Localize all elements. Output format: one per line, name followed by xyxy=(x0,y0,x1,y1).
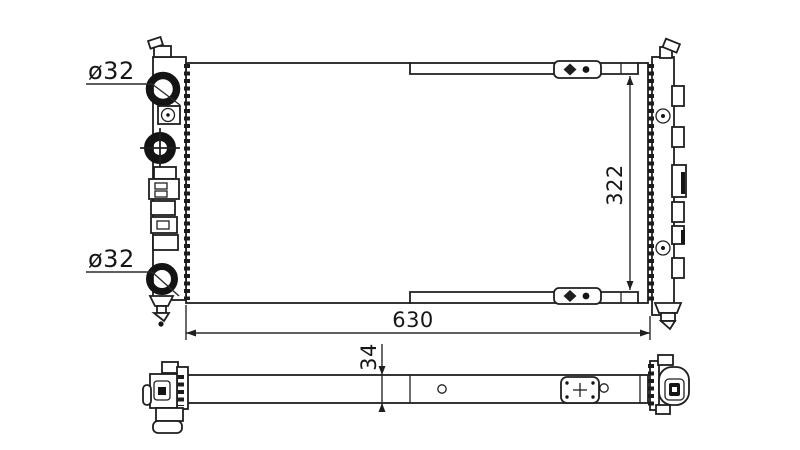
pad-dot xyxy=(565,381,568,384)
tab-flange xyxy=(681,172,685,194)
boss-center xyxy=(661,246,665,250)
tab xyxy=(672,127,684,147)
top-tab xyxy=(162,362,178,373)
right-tank-body xyxy=(652,57,674,315)
bracket-body xyxy=(554,61,601,78)
inner-plug-notch xyxy=(672,387,677,392)
side-left-tank-profile xyxy=(143,362,188,433)
tab-flange xyxy=(681,230,685,244)
drain-tip xyxy=(154,313,169,321)
radiator-drawing-canvas: ø32 ø32 322 630 xyxy=(0,0,800,450)
tab xyxy=(672,202,684,222)
fastener-dot-icon xyxy=(583,66,590,73)
mounting-pad xyxy=(561,377,599,403)
arrow-up-icon xyxy=(379,403,386,412)
boss-center xyxy=(166,113,170,117)
drain-tip xyxy=(661,321,675,329)
fastener-dot-icon xyxy=(583,293,590,300)
right-drain-fitting xyxy=(655,303,681,329)
right-tank xyxy=(651,39,686,329)
top-tab xyxy=(658,355,673,365)
dim-label-core-height: 322 xyxy=(603,164,627,206)
drain-funnel xyxy=(150,296,173,306)
pad-dot xyxy=(565,395,568,398)
drain-funnel xyxy=(655,303,681,313)
dim-label-top-port: ø32 xyxy=(88,57,135,85)
tab xyxy=(151,217,177,233)
hose-end xyxy=(153,421,182,433)
technical-drawing-page: ø32 ø32 322 630 xyxy=(0,0,800,450)
right-tank-top-cap xyxy=(660,39,680,58)
left-drain-fitting xyxy=(150,296,173,327)
arrow-left-icon xyxy=(186,330,196,337)
tab xyxy=(154,167,176,179)
boss-center xyxy=(661,114,665,118)
pad-dot xyxy=(591,381,594,384)
hose-stub xyxy=(156,408,183,421)
tab xyxy=(672,258,684,278)
dim-label-bottom-port: ø32 xyxy=(88,245,135,273)
side-view: 34 xyxy=(143,343,689,433)
left-boss-upper xyxy=(158,106,180,124)
bottom-tab xyxy=(656,405,670,414)
arrow-right-icon xyxy=(640,330,650,337)
dim-label-core-width: 630 xyxy=(392,308,434,332)
front-view: ø32 ø32 322 630 xyxy=(86,37,686,340)
cap-neck xyxy=(154,46,171,57)
drain-stem xyxy=(157,306,166,313)
bracket-body xyxy=(554,288,601,304)
tab xyxy=(153,235,178,250)
side-bump xyxy=(143,385,151,405)
side-right-tank-profile xyxy=(650,355,689,414)
left-tank-tabs xyxy=(149,167,179,250)
dim-label-core-depth: 34 xyxy=(357,343,381,371)
drain-end xyxy=(158,321,163,326)
radiator-core xyxy=(186,63,648,303)
mounting-bracket-top xyxy=(554,61,601,78)
mounting-bracket-bottom xyxy=(554,288,601,304)
dimension-core-width: 630 xyxy=(186,305,650,340)
drain-stem xyxy=(661,313,675,321)
tab xyxy=(672,86,684,106)
left-tank-top-cap xyxy=(148,37,171,57)
pad-dot xyxy=(591,395,594,398)
end-plate xyxy=(177,367,188,409)
inner-plug xyxy=(158,387,166,395)
tab xyxy=(151,201,175,215)
